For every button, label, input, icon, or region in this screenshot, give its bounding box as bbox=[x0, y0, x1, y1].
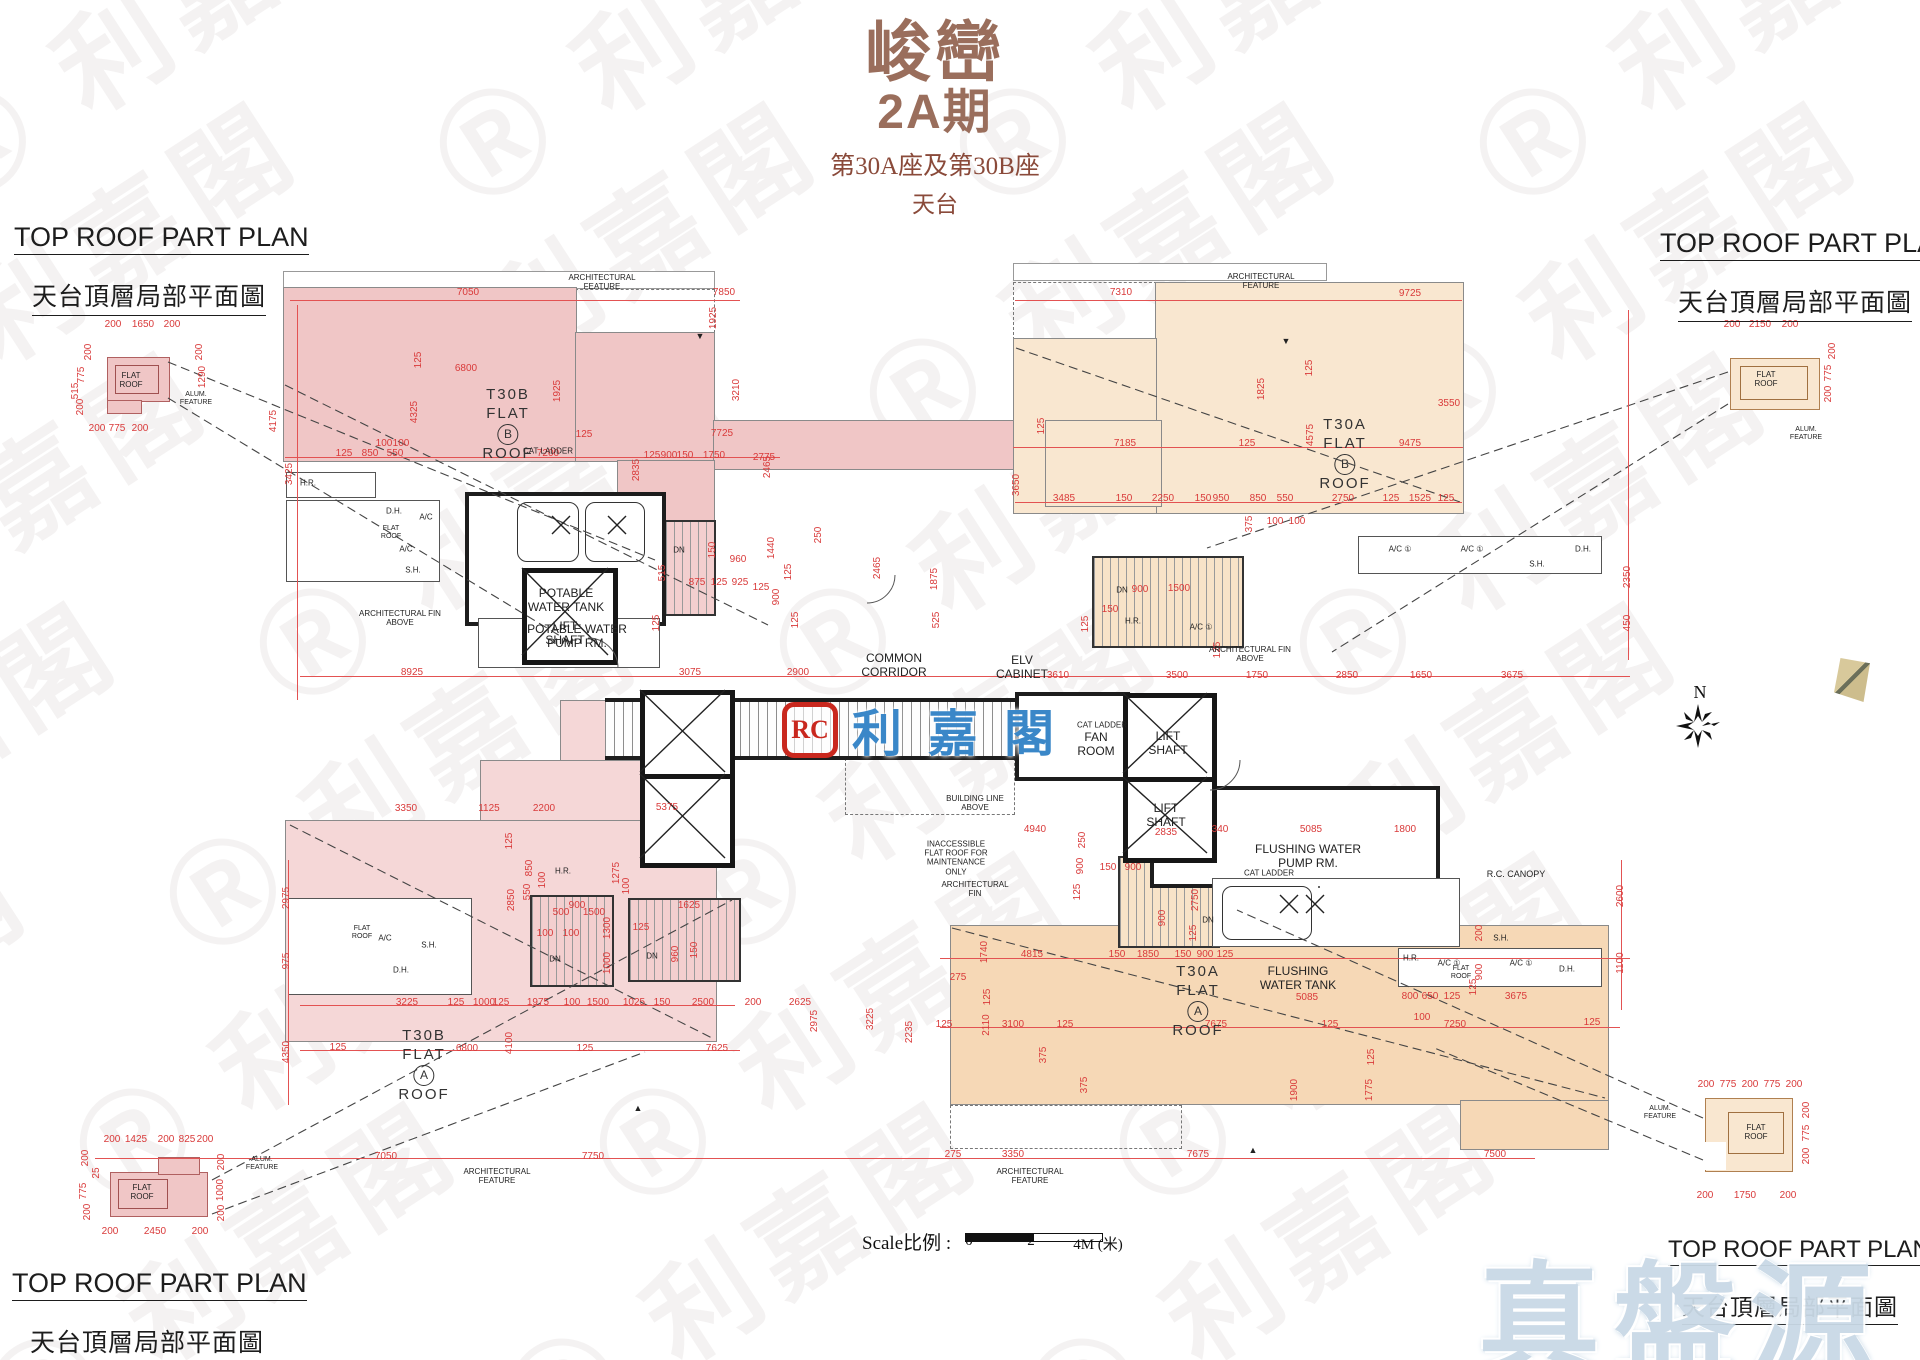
dimension-label: 150 bbox=[1116, 494, 1133, 504]
floor-name: 天台 bbox=[830, 185, 1040, 219]
dimension-label: 775 bbox=[109, 424, 126, 434]
dimension-label: 4940 bbox=[1024, 825, 1046, 835]
dimension-label: 1100 bbox=[1616, 952, 1626, 974]
scale-tick-4: 4M (米) bbox=[1073, 1233, 1123, 1254]
dimension-label: 900 bbox=[772, 589, 782, 606]
dimension-label: 100 bbox=[1414, 1013, 1431, 1023]
dimension-label: 5085 bbox=[1296, 993, 1318, 1003]
dimension-label: 960 bbox=[671, 946, 681, 963]
annotation-label: BUILDING LINE ABOVE bbox=[946, 794, 1004, 812]
annotation-label: ELV CABINET bbox=[996, 654, 1048, 682]
annotation-label: DN bbox=[673, 545, 685, 554]
dimension-label: 100 bbox=[564, 998, 581, 1008]
dimension-label: 7500 bbox=[1484, 1150, 1506, 1160]
dimension-label: 975 bbox=[282, 953, 292, 970]
annotation-label: LIFT SHAFT bbox=[1146, 802, 1185, 830]
annotation-label: DN bbox=[549, 954, 561, 963]
dimension-label: 150 bbox=[1100, 863, 1117, 873]
dimension-line bbox=[300, 1050, 740, 1051]
dimension-label: 3100 bbox=[1002, 1020, 1024, 1030]
dimension-label: 125 bbox=[1584, 1018, 1601, 1028]
dimension-label: 450 bbox=[1623, 615, 1633, 632]
dimension-label: 1975 bbox=[527, 998, 549, 1008]
dimension-label: 2600 bbox=[1616, 885, 1626, 907]
dimension-label: 250 bbox=[1078, 832, 1088, 849]
flat-name-label: T30AFLATBROOF bbox=[1319, 416, 1370, 493]
dimension-label: 1000 bbox=[603, 952, 613, 974]
dimension-label: 200 bbox=[1828, 343, 1838, 360]
dimension-label: 7725 bbox=[711, 429, 733, 439]
annotation-label: POTABLE WATER TANK bbox=[528, 587, 604, 615]
annotation-label: ▲ bbox=[1249, 1145, 1258, 1155]
annotation-label: FLAT ROOF bbox=[1744, 1123, 1767, 1141]
dimension-label: 7050 bbox=[375, 1152, 397, 1162]
dimension-label: 1850 bbox=[1137, 950, 1159, 960]
dimension-label: 375 bbox=[1039, 1047, 1049, 1064]
dimension-line bbox=[290, 300, 740, 301]
dimension-label: 875 bbox=[689, 578, 706, 588]
dimension-label: 3425 bbox=[285, 463, 295, 485]
dimension-label: 1300 bbox=[603, 917, 613, 939]
dimension-label: 2625 bbox=[789, 998, 811, 1008]
scale-bar: Scale比例 : 0 2 4M (米) bbox=[862, 1228, 1103, 1255]
dimension-label: 7750 bbox=[582, 1152, 604, 1162]
dimension-label: 150 bbox=[1195, 494, 1212, 504]
annotation-label: LIFT SHAFT bbox=[1148, 730, 1187, 758]
annotation-label: D.H. bbox=[386, 506, 402, 515]
annotation-label: H.R. bbox=[555, 866, 571, 875]
dimension-label: 825 bbox=[179, 1135, 196, 1145]
annotation-label: S.H. bbox=[1493, 933, 1509, 942]
verified-watermark: 真盤源 bbox=[1478, 1222, 1886, 1360]
annotation-label: A/C bbox=[399, 544, 412, 553]
annotation-label: INACCESSIBLE FLAT ROOF FOR MAINTENANCE O… bbox=[924, 840, 987, 877]
dimension-label: 4575 bbox=[1306, 424, 1316, 446]
dimension-label: 900 bbox=[569, 901, 586, 911]
dimension-label: 2975 bbox=[810, 1010, 820, 1032]
dimension-label: 6800 bbox=[455, 364, 477, 374]
annotation-label: FLAT ROOF bbox=[130, 1183, 153, 1201]
dimension-label: 200 bbox=[1786, 1080, 1803, 1090]
annotation-label: ARCHITECTURAL FIN ABOVE bbox=[359, 609, 441, 627]
dimension-label: 3485 bbox=[1053, 494, 1075, 504]
dimension-label: 200 bbox=[1742, 1080, 1759, 1090]
dimension-label: 200 bbox=[217, 1205, 227, 1222]
dimension-label: 1925 bbox=[553, 380, 563, 402]
dimension-label: 150 bbox=[1102, 605, 1119, 615]
dimension-label: 200 bbox=[83, 1204, 93, 1221]
dimension-label: 125 bbox=[1367, 1049, 1377, 1066]
dimension-label: 2850 bbox=[1336, 671, 1358, 681]
dimension-label: 125 bbox=[983, 989, 993, 1006]
dimension-label: 125 bbox=[1469, 979, 1479, 996]
dimension-label: 200 bbox=[1475, 925, 1485, 942]
north-arrow: N bbox=[1680, 682, 1720, 703]
annotation-label: A/C ① bbox=[1190, 622, 1213, 631]
scale-label: Scale比例 : bbox=[862, 1228, 951, 1255]
dimension-label: 2850 bbox=[507, 889, 517, 911]
dimension-label: 200 bbox=[1824, 386, 1834, 403]
annotation-label: H.R. bbox=[1403, 953, 1419, 962]
annotation-label: ARCHITECTURAL FEATURE bbox=[568, 273, 635, 291]
dimension-label: 125 bbox=[791, 612, 801, 629]
dimension-label: 1925 bbox=[709, 307, 719, 329]
plan-title-zh: 天台頂層局部平面圖 bbox=[30, 1323, 264, 1360]
dimension-label: 4100 bbox=[505, 1032, 515, 1054]
dimension-label: 200 bbox=[1698, 1080, 1715, 1090]
dimension-label: 125 bbox=[1305, 360, 1315, 377]
dimension-label: 2450 bbox=[144, 1227, 166, 1237]
dimension-label: 125 bbox=[1444, 992, 1461, 1002]
header-bottom-left: TOP ROOF PART PLAN 天台頂層局部平面圖 bbox=[12, 1268, 307, 1360]
dimension-label: 200 bbox=[1802, 1148, 1812, 1165]
scale-tick-0: 0 bbox=[965, 1233, 973, 1250]
dimension-label: 950 bbox=[1213, 494, 1230, 504]
annotation-label: FLAT ROOF bbox=[381, 525, 401, 541]
annotation-label: D.H. bbox=[1575, 544, 1591, 553]
dimension-line bbox=[1628, 310, 1629, 660]
annotation-label: ▼ bbox=[696, 331, 705, 341]
dimension-label: 125 bbox=[1322, 1020, 1339, 1030]
annotation-label: DN bbox=[646, 951, 658, 960]
development-name: 峻巒 bbox=[830, 18, 1040, 87]
dimension-label: 850 bbox=[362, 449, 379, 459]
dimension-label: 100 bbox=[622, 878, 632, 895]
dimension-label: 100 bbox=[537, 929, 554, 939]
dimension-label: 7625 bbox=[706, 1044, 728, 1054]
annotation-label: FLAT ROOF bbox=[1451, 965, 1471, 981]
dimension-label: 125 bbox=[1189, 925, 1199, 942]
plan-title-zh: 天台頂層局部平面圖 bbox=[32, 277, 266, 316]
dimension-label: 9725 bbox=[1399, 289, 1421, 299]
dimension-label: 2975 bbox=[282, 887, 292, 909]
agency-logo-badge-icon: RC bbox=[782, 702, 838, 758]
dimension-label: 2750 bbox=[1332, 494, 1354, 504]
dimension-label: 515 bbox=[71, 383, 81, 400]
north-label: N bbox=[1680, 682, 1720, 703]
dimension-label: 200 bbox=[81, 1150, 91, 1167]
dimension-label: 375 bbox=[1245, 516, 1255, 533]
dimension-label: 100 bbox=[1289, 517, 1306, 527]
dimension-label: 125 bbox=[414, 352, 424, 369]
dimension-label: 2200 bbox=[533, 804, 555, 814]
dimension-label: 1875 bbox=[930, 568, 940, 590]
dimension-label: 125 bbox=[493, 998, 510, 1008]
dimension-label: 125 bbox=[633, 923, 650, 933]
annotation-label: ARCHITECTURAL FEATURE bbox=[996, 1167, 1063, 1185]
dimension-label: 1750 bbox=[1734, 1191, 1756, 1201]
annotation-label: FLAT ROOF bbox=[119, 371, 142, 389]
dimension-label: 515 bbox=[658, 565, 668, 582]
dimension-label: 925 bbox=[732, 578, 749, 588]
annotation-label: DN bbox=[1116, 585, 1128, 594]
dimension-label: 200 bbox=[195, 344, 205, 361]
agency-logo: RC 利嘉閣 bbox=[782, 694, 1080, 766]
dimension-label: 1900 bbox=[1290, 1079, 1300, 1101]
dimension-label: 2500 bbox=[692, 998, 714, 1008]
dimension-label: 8925 bbox=[401, 668, 423, 678]
dimension-label: 2235 bbox=[905, 1021, 915, 1043]
dimension-label: 125 bbox=[577, 1044, 594, 1054]
dimension-label: 200 bbox=[89, 424, 106, 434]
dimension-label: 125 bbox=[753, 583, 770, 593]
dimension-label: 4350 bbox=[282, 1041, 292, 1063]
dimension-label: 125 bbox=[1073, 884, 1083, 901]
dimension-label: 7185 bbox=[1114, 439, 1136, 449]
plan-title-en: TOP ROOF PART PLAN bbox=[1660, 228, 1920, 261]
annotation-label: COMMON CORRIDOR bbox=[861, 652, 926, 680]
annotation-label: A/C bbox=[378, 933, 391, 942]
dimension-label: 650 bbox=[1422, 992, 1439, 1002]
dimension-label: 100 bbox=[563, 929, 580, 939]
dimension-label: 3675 bbox=[1505, 992, 1527, 1002]
dimension-label: 125 bbox=[936, 1020, 953, 1030]
annotation-label: ALUM. FEATURE bbox=[180, 391, 212, 407]
plan-title-en: TOP ROOF PART PLAN bbox=[12, 1268, 307, 1301]
annotation-label: A/C ① bbox=[1510, 958, 1533, 967]
dimension-label: 150 bbox=[1175, 950, 1192, 960]
annotation-label: ▲ bbox=[634, 1103, 643, 1113]
annotation-label: CAT LADDER bbox=[1077, 720, 1127, 729]
dimension-label: 100 bbox=[538, 872, 548, 889]
dimension-label: 1625 bbox=[678, 901, 700, 911]
dimension-label: 200 bbox=[132, 424, 149, 434]
dimension-label: 7850 bbox=[713, 288, 735, 298]
dimension-label: 775 bbox=[1764, 1080, 1781, 1090]
annotation-label: ARCHITECTURAL FIN ABOVE bbox=[1209, 645, 1291, 663]
dimension-label: 125 bbox=[652, 615, 662, 632]
dimension-label: 275 bbox=[950, 973, 967, 983]
dimension-label: 550 bbox=[1277, 494, 1294, 504]
dimension-label: 3350 bbox=[395, 804, 417, 814]
dimension-label: 7310 bbox=[1110, 288, 1132, 298]
dimension-label: 200 bbox=[1697, 1191, 1714, 1201]
annotation-label: ARCHITECTURAL FIN bbox=[941, 880, 1008, 898]
annotation-label: A/C ① bbox=[1461, 544, 1484, 553]
dimension-label: 200 bbox=[102, 1227, 119, 1237]
dimension-label: 1000 bbox=[216, 1179, 226, 1201]
dimension-label: 3550 bbox=[1438, 399, 1460, 409]
dimension-label: 2750 bbox=[1191, 889, 1201, 911]
dimension-label: 125 bbox=[1239, 439, 1256, 449]
dimension-line bbox=[1621, 860, 1622, 1010]
dimension-label: 1025 bbox=[623, 998, 645, 1008]
dimension-label: 100 bbox=[376, 439, 393, 449]
dimension-label: 125 bbox=[1383, 494, 1400, 504]
dimension-label: 200 bbox=[84, 344, 94, 361]
dimension-label: 200 bbox=[158, 1135, 175, 1145]
dimension-label: 200 bbox=[1802, 1102, 1812, 1119]
dimension-label: 125 bbox=[784, 564, 794, 581]
dimension-label: 2900 bbox=[787, 668, 809, 678]
dimension-label: 525 bbox=[932, 612, 942, 629]
annotation-label: FLUSHING WATER PUMP RM. bbox=[1255, 843, 1361, 871]
dimension-label: 775 bbox=[79, 1183, 89, 1200]
dimension-label: 775 bbox=[1720, 1080, 1737, 1090]
dimension-line bbox=[1015, 300, 1462, 301]
dimension-label: 550 bbox=[387, 449, 404, 459]
dimension-line bbox=[940, 1027, 1620, 1028]
dimension-label: 200 bbox=[745, 998, 762, 1008]
floor-plan-page: { "title": { "name": "峻巒", "phase": "2A期… bbox=[0, 0, 1920, 1360]
dimension-label: 125 bbox=[336, 449, 353, 459]
annotation-label: R.C. CANOPY bbox=[1487, 869, 1546, 879]
annotation-label: ▼ bbox=[1282, 336, 1291, 346]
plan-title-en: TOP ROOF PART PLAN bbox=[14, 222, 309, 255]
dimension-label: 1825 bbox=[1257, 378, 1267, 400]
dimension-label: 7250 bbox=[1444, 1020, 1466, 1030]
dimension-label: 150 bbox=[708, 542, 718, 559]
dimension-label: 1500 bbox=[587, 998, 609, 1008]
dimension-label: 150 bbox=[690, 942, 700, 959]
dimension-label: 1525 bbox=[1409, 494, 1431, 504]
dimension-label: 2350 bbox=[1623, 566, 1633, 588]
annotation-label: S.H. bbox=[1529, 559, 1545, 568]
dimension-label: 1740 bbox=[980, 941, 990, 963]
dimension-label: 775 bbox=[1802, 1125, 1812, 1142]
dimension-label: 5085 bbox=[1300, 825, 1322, 835]
dimension-label: 200 bbox=[76, 399, 86, 416]
dimension-label: 200 bbox=[192, 1227, 209, 1237]
dimension-label: 1125 bbox=[478, 804, 500, 814]
annotation-label: A/C ① bbox=[1389, 544, 1412, 553]
dimension-label: 3675 bbox=[1501, 671, 1523, 681]
dimension-label: 150 bbox=[1109, 950, 1126, 960]
dimension-label: 3075 bbox=[679, 668, 701, 678]
dimension-label: 1650 bbox=[1410, 671, 1432, 681]
dimension-label: 2250 bbox=[1152, 494, 1174, 504]
dimension-label: 960 bbox=[730, 555, 747, 565]
tower-names: 第30A座及第30B座 bbox=[830, 146, 1040, 182]
annotation-label: D.H. bbox=[393, 965, 409, 974]
dimension-label: 250 bbox=[814, 527, 824, 544]
dimension-label: 850 bbox=[1250, 494, 1267, 504]
dimension-label: 2835 bbox=[632, 459, 642, 481]
dimension-label: 900 bbox=[1076, 858, 1086, 875]
dimension-label: 1440 bbox=[767, 537, 777, 559]
dimension-label: 3225 bbox=[866, 1008, 876, 1030]
plan-title-zh: 天台頂層局部平面圖 bbox=[1678, 283, 1912, 322]
flat-name-label: T30BFLATAROOF bbox=[398, 1027, 449, 1104]
dimension-label: 1800 bbox=[1394, 825, 1416, 835]
scale-bar-graphic: 0 2 4M (米) bbox=[965, 1233, 1103, 1242]
annotation-label: FLAT ROOF bbox=[1754, 370, 1777, 388]
dimension-label: 340 bbox=[1212, 825, 1229, 835]
dimension-label: 125 bbox=[711, 578, 728, 588]
flat-name-label: T30BFLATBROOF bbox=[482, 386, 533, 463]
dimension-label: 1750 bbox=[703, 451, 725, 461]
dimension-label: 275 bbox=[945, 1150, 962, 1160]
annotation-label: H.R. bbox=[300, 478, 316, 487]
dimension-label: 1500 bbox=[1168, 584, 1190, 594]
dimension-label: 900 bbox=[1132, 585, 1149, 595]
dimension-label: 2465 bbox=[873, 557, 883, 579]
annotation-label: DN bbox=[1202, 915, 1214, 924]
dimension-label: 100 bbox=[393, 439, 410, 449]
dimension-label: 900 bbox=[661, 451, 678, 461]
dimension-label: 3650 bbox=[1012, 474, 1022, 496]
dimension-label: 1650 bbox=[132, 320, 154, 330]
dimension-label: 200 bbox=[197, 1135, 214, 1145]
dimension-label: 125 bbox=[1037, 418, 1047, 435]
dimension-label: 7050 bbox=[457, 288, 479, 298]
dimension-label: 4175 bbox=[269, 410, 279, 432]
annotation-label: S.H. bbox=[421, 940, 437, 949]
dimension-label: 200 bbox=[217, 1154, 227, 1171]
dimension-label: 125 bbox=[1057, 1020, 1074, 1030]
dimension-label: 900 bbox=[1197, 950, 1214, 960]
dimension-label: 125 bbox=[644, 451, 661, 461]
dimension-label: 125 bbox=[1217, 950, 1234, 960]
annotation-label: D.H. bbox=[1559, 964, 1575, 973]
dimension-line bbox=[297, 305, 298, 700]
annotation-label: ARCHITECTURAL FEATURE bbox=[463, 1167, 530, 1185]
dimension-label: 1425 bbox=[125, 1135, 147, 1145]
header-top-left: TOP ROOF PART PLAN 天台頂層局部平面圖 bbox=[14, 222, 309, 316]
scale-tick-2: 2 bbox=[1027, 1233, 1035, 1250]
dimension-label: 550 bbox=[523, 884, 533, 901]
dimension-label: 2110 bbox=[982, 1014, 992, 1036]
dimension-label: 150 bbox=[677, 451, 694, 461]
flat-name-label: T30AFLATAROOF bbox=[1172, 963, 1223, 1040]
annotation-label: H.R. bbox=[1125, 616, 1141, 625]
phase-name: 2A期 bbox=[830, 87, 1040, 140]
dimension-label: 4815 bbox=[1021, 950, 1043, 960]
dimension-label: 3500 bbox=[1166, 671, 1188, 681]
dimension-label: 200 bbox=[164, 320, 181, 330]
annotation-label: S.H. bbox=[405, 565, 421, 574]
dimension-label: 775 bbox=[77, 367, 87, 384]
dimension-label: 1750 bbox=[1246, 671, 1268, 681]
dimension-label: 5375 bbox=[656, 803, 678, 813]
dimension-label: 200 bbox=[104, 1135, 121, 1145]
dimension-label: 900 bbox=[1125, 863, 1142, 873]
dimension-label: 500 bbox=[553, 908, 570, 918]
dimension-label: 6800 bbox=[456, 1044, 478, 1054]
dimension-label: 800 bbox=[1402, 992, 1419, 1002]
annotation-label: FLAT ROOF bbox=[352, 925, 372, 941]
dimension-label: 125 bbox=[448, 998, 465, 1008]
dimension-label: 25 bbox=[92, 1167, 102, 1178]
annotation-label: A/C bbox=[419, 512, 432, 521]
dimension-label: 9475 bbox=[1399, 439, 1421, 449]
annotation-label: FLUSHING WATER TANK bbox=[1260, 965, 1336, 993]
dimension-line bbox=[95, 1158, 1535, 1159]
title-block: 峻巒 2A期 第30A座及第30B座 天台 bbox=[830, 18, 1040, 219]
dimension-label: 850 bbox=[525, 860, 535, 877]
dimension-label: 200 bbox=[105, 320, 122, 330]
dimension-label: 900 bbox=[1158, 910, 1168, 927]
dimension-label: 375 bbox=[1080, 1077, 1090, 1094]
agency-logo-text: 利嘉閣 bbox=[852, 694, 1080, 766]
annotation-label: ALUM. FEATURE bbox=[1790, 426, 1822, 442]
annotation-label: ARCHITECTURAL FEATURE bbox=[1227, 272, 1294, 290]
dimension-label: 200 bbox=[1780, 1191, 1797, 1201]
dimension-label: 125 bbox=[505, 833, 515, 850]
dimension-label: 3610 bbox=[1047, 671, 1069, 681]
dimension-label: 100 bbox=[1267, 517, 1284, 527]
annotation-label: POTABLE WATER PUMP RM. bbox=[527, 623, 627, 651]
dimension-label: 125 bbox=[1438, 494, 1455, 504]
dimension-label: 150 bbox=[654, 998, 671, 1008]
header-top-right: TOP ROOF PART PLAN 天台頂層局部平面圖 bbox=[1660, 228, 1920, 322]
annotation-label: ALUM. FEATURE bbox=[246, 1156, 278, 1172]
dimension-label: 775 bbox=[1824, 365, 1834, 382]
dimension-label: 125 bbox=[576, 430, 593, 440]
dimension-label: 1290 bbox=[198, 366, 208, 388]
dimension-label: 125 bbox=[330, 1043, 347, 1053]
dimension-label: 2465 bbox=[763, 456, 773, 478]
